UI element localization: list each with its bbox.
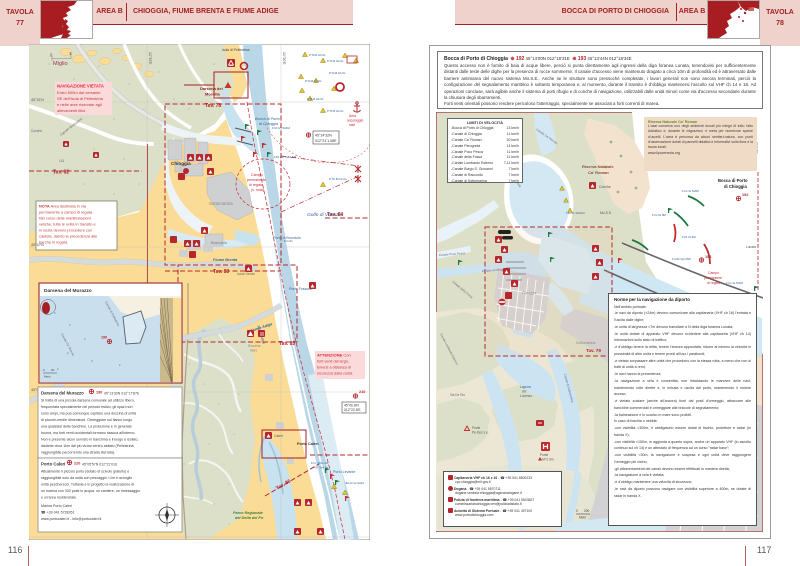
svg-text:220: 220 [74, 462, 80, 466]
svg-text:SE dell'Isola di Pellestrina: SE dell'Isola di Pellestrina [57, 96, 104, 101]
svg-text:Tav. 83: Tav. 83 [213, 269, 229, 275]
svg-text:Miglio: Miglio [53, 61, 68, 67]
svg-text:di Chioggia: di Chioggia [724, 184, 747, 189]
svg-text:P.TA B.Gb.6s: P.TA B.Gb.6s [329, 177, 347, 181]
svg-text:Metri: Metri [44, 375, 51, 379]
svg-text:Tav. 79: Tav. 79 [586, 348, 601, 353]
svg-text:ATTENZIONE Con: ATTENZIONE Con [317, 353, 351, 358]
svg-text:Conche: Conche [599, 185, 611, 189]
svg-text:sono ampi, ma può comunque osp: sono ampi, ma può comunque ospitare una … [41, 412, 136, 416]
svg-text:Parco Regionale: Parco Regionale [233, 511, 263, 515]
svg-text:45°13'30N 012°17'87E: 45°13'30N 012°17'87E [104, 392, 140, 396]
svg-text:(v. nota): (v. nota) [251, 188, 264, 192]
svg-text:FI.R.3s 6M: FI.R.3s 6M [682, 235, 696, 239]
svg-text:192: 192 [742, 193, 748, 197]
svg-text:Attualmente il piccolo porto (: Attualmente il piccolo porto (dotato di … [41, 470, 129, 474]
svg-text:e un'area residenziale.: e un'area residenziale. [41, 496, 77, 500]
svg-text:forti venti dal largo,: forti venti dal largo, [317, 360, 349, 364]
svg-text:Lunata: Lunata [746, 245, 756, 249]
svg-text:Tav. 82: Tav. 82 [53, 170, 69, 176]
svg-text:P.TA B.Gb.6s: P.TA B.Gb.6s [309, 53, 326, 57]
svg-text:Porto Caleri: Porto Caleri [41, 462, 65, 467]
svg-text:210: 210 [359, 390, 365, 394]
svg-text:tenersi a distanza di: tenersi a distanza di [317, 366, 351, 370]
svg-text:20: 20 [51, 368, 55, 372]
svg-text:193: 193 [705, 255, 711, 259]
svg-text:raggiungibile percorrendo una: raggiungibile percorrendo una strada ste… [41, 451, 115, 455]
svg-text:Rosolina: Rosolina [248, 344, 261, 348]
svg-text:M=2.3m: M=2.3m [542, 458, 554, 462]
svg-text:45°10'N: 45°10'N [31, 243, 44, 247]
svg-text:Brondolo: Brondolo [211, 240, 228, 245]
svg-text:Laguna: Laguna [520, 385, 531, 389]
svg-text:FI.OR 3s(V)5M: FI.OR 3s(V)5M [672, 257, 691, 261]
svg-text:Campo: Campo [708, 271, 719, 275]
svg-text:Porto Caleri: Porto Caleri [297, 442, 319, 446]
svg-text:NOTA Area destinata in via: NOTA Area destinata in via [39, 204, 87, 209]
svg-text:190: 190 [96, 391, 102, 395]
svg-text:Ponte: Ponte [540, 453, 549, 457]
svg-text:www.portocaleri.it - info@port: www.portocaleri.it - info@portocaleri.it [41, 517, 101, 521]
svg-text:141: 141 [59, 159, 65, 163]
svg-text:distante circa 1km dal più vic: distante circa 1km dal più vicino centro… [41, 444, 134, 448]
svg-text:Nel corso delle manifestazi: Nel corso delle manifestazioni [39, 216, 91, 221]
svg-text:Golfo di Venezia: Golfo di Venezia [307, 212, 342, 218]
svg-text:Area: Area [349, 114, 356, 118]
svg-text:un marina con 330 posti in acq: un marina con 330 posti in acqua, un can… [41, 489, 140, 493]
svg-text:di regata: di regata [707, 281, 720, 285]
svg-text:Sottomarina: Sottomarina [209, 201, 233, 206]
svg-text:Caleri: Caleri [274, 434, 283, 438]
svg-text:012°22.8'E: 012°22.8'E [344, 408, 361, 412]
svg-text:Porto Levante: Porto Levante [333, 470, 355, 474]
svg-text:12°20'E: 12°20'E [282, 52, 286, 65]
svg-text:Riserva Naturale: Riserva Naturale [582, 164, 614, 169]
svg-text:F.G.5s: F.G.5s [284, 239, 293, 243]
svg-text:Val De Rio: Val De Rio [450, 393, 465, 397]
svg-text:veliche, tutte le unità in tra: veliche, tutte le unità in transito e [39, 222, 96, 227]
svg-text:unità pescherecci. Tuttavia è: unità pescherecci. Tuttavia è in progett… [41, 483, 134, 487]
svg-text:Darsena del Murazzo: Darsena del Murazzo [41, 391, 84, 396]
svg-text:FI.G.5s 8M: FI.G.5s 8M [652, 213, 667, 217]
svg-text:Tav. 85: Tav. 85 [279, 341, 295, 347]
svg-text:Isola di Pellestrina: Isola di Pellestrina [222, 48, 250, 52]
svg-text:una qualsiasi delle banchine.: una qualsiasi delle banchine. La protezi… [41, 425, 132, 429]
svg-text:Si tratta di una piccola darse: Si tratta di una piccola darsena comunal… [41, 399, 135, 403]
svg-text:Conche: Conche [31, 129, 42, 133]
svg-text:permanente: permanente [704, 276, 722, 280]
svg-text:F.G. 3s5s 6d: F.G. 3s5s 6d [311, 461, 328, 465]
svg-text:012°21'1.08E: 012°21'1.08E [315, 139, 337, 143]
svg-text:buona, ma forti venti occident: buona, ma forti venti occidentali forman… [41, 431, 135, 435]
svg-text:P.TA B.Gb.6s: P.TA B.Gb.6s [307, 97, 324, 101]
svg-text:150.(G) 5s11 5M: 150.(G) 5s11 5M [274, 155, 297, 159]
svg-text:Entro 500m dal versante: Entro 500m dal versante [57, 90, 101, 95]
svg-text:del: del [522, 390, 527, 394]
svg-text:Marina Porto Caleri: Marina Porto Caleri [41, 504, 72, 508]
svg-text:F.M.(V) 5s6M: F.M.(V) 5s6M [272, 126, 290, 130]
svg-text:190: 190 [101, 336, 107, 340]
svg-text:permanente: permanente [247, 178, 266, 182]
svg-text:12°15'E: 12°15'E [148, 52, 152, 65]
svg-text:Bocca di Porto: Bocca di Porto [255, 117, 280, 121]
svg-text:Porto Fossone: Porto Fossone [289, 287, 312, 291]
svg-text:Mare: Mare [250, 349, 257, 353]
svg-text:☎ +39 041 5728261: ☎ +39 041 5728261 [41, 511, 75, 515]
svg-text:P.TA B.Gb.6s: P.TA B.Gb.6s [327, 109, 344, 113]
svg-text:45°05'57N 012°21'01E: 45°05'57N 012°21'01E [82, 463, 118, 467]
svg-text:Isola Verde: Isola Verde [237, 272, 255, 276]
svg-text:0: 0 [576, 509, 578, 513]
svg-text:di piccole-medie dimensioni. O: di piccole-medie dimensioni. Ormeggiare … [41, 418, 132, 422]
svg-text:Pe-Des s.p.: Pe-Des s.p. [472, 431, 489, 435]
svg-text:permanente a campo di regata.: permanente a campo di regata. [39, 210, 93, 215]
svg-text:Tav. 78: Tav. 78 [205, 103, 221, 109]
svg-text:Chioggia: Chioggia [171, 161, 191, 166]
svg-text:e nelle aree riservate agli: e nelle aree riservate agli [57, 102, 102, 107]
svg-text:P.TA B.Gb.6s: P.TA B.Gb.6s [329, 71, 346, 75]
svg-text:Chioggia: Chioggia [522, 291, 536, 295]
svg-text:P.TA B.Gb.6s: P.TA B.Gb.6s [305, 79, 322, 83]
svg-text:200: 200 [584, 509, 590, 513]
svg-text:Mo.S.E.: Mo.S.E. [600, 211, 612, 215]
svg-text:P.TA B.Gb.6s: P.TA B.Gb.6s [327, 59, 344, 63]
svg-text:Darsena del: Darsena del [200, 86, 223, 91]
svg-text:F.R. 3s4 6s: F.R. 3s4 6s [313, 466, 329, 470]
svg-text:Jks.R.Gr.9s6d: Jks.R.Gr.9s6d [345, 481, 364, 485]
svg-text:FI.G.3s 5s6M: FI.G.3s 5s6M [682, 189, 699, 193]
svg-text:Ponte: Ponte [472, 426, 481, 430]
svg-text:allevamenti ittici.: allevamenti ittici. [57, 108, 86, 113]
svg-text:cautela, dando la precedenza a: cautela, dando la precedenza alle [39, 234, 97, 239]
svg-text:Bocca di Porto: Bocca di Porto [718, 178, 748, 183]
svg-text:navi: navi [349, 123, 355, 127]
svg-text:sicurezza dalla costa.: sicurezza dalla costa. [317, 372, 353, 376]
svg-text:NAVIGAZIONE VIETATA: NAVIGAZIONE VIETATA [57, 84, 104, 89]
svg-text:del Delta del Po: del Delta del Po [235, 516, 264, 520]
svg-text:raggiungibile solo da unità co: raggiungibile solo da unità con pescaggi… [41, 476, 132, 480]
svg-text:Campo: Campo [251, 173, 263, 177]
svg-text:Non è presente alcun servizio: Non è presente alcun servizio in banchin… [41, 438, 139, 442]
svg-text:frequentata specialmente nel p: frequentata specialmente nel periodo est… [41, 405, 133, 409]
svg-text:Fiume Brenta: Fiume Brenta [213, 258, 237, 262]
svg-text:Ca' Roman: Ca' Roman [588, 170, 609, 175]
svg-text:ancoraggio: ancoraggio [347, 119, 363, 123]
svg-text:45°06.8'N: 45°06.8'N [344, 404, 359, 408]
svg-text:45°14'32N: 45°14'32N [315, 134, 332, 138]
svg-text:Darsena del Murazzo: Darsena del Murazzo [44, 288, 92, 294]
svg-text:Metri: Metri [579, 516, 586, 520]
svg-text:di regata: di regata [249, 183, 263, 187]
svg-text:Sottomarina: Sottomarina [576, 341, 595, 345]
svg-text:FI.G.3s 5s6M: FI.G.3s 5s6M [726, 281, 743, 285]
svg-text:45°15'N: 45°15'N [31, 98, 44, 102]
svg-text:Mosella: Mosella [205, 92, 220, 97]
svg-text:Lusenzo: Lusenzo [520, 394, 532, 398]
svg-text:in sosta devono procedere: in sosta devono procedere con [39, 228, 92, 233]
